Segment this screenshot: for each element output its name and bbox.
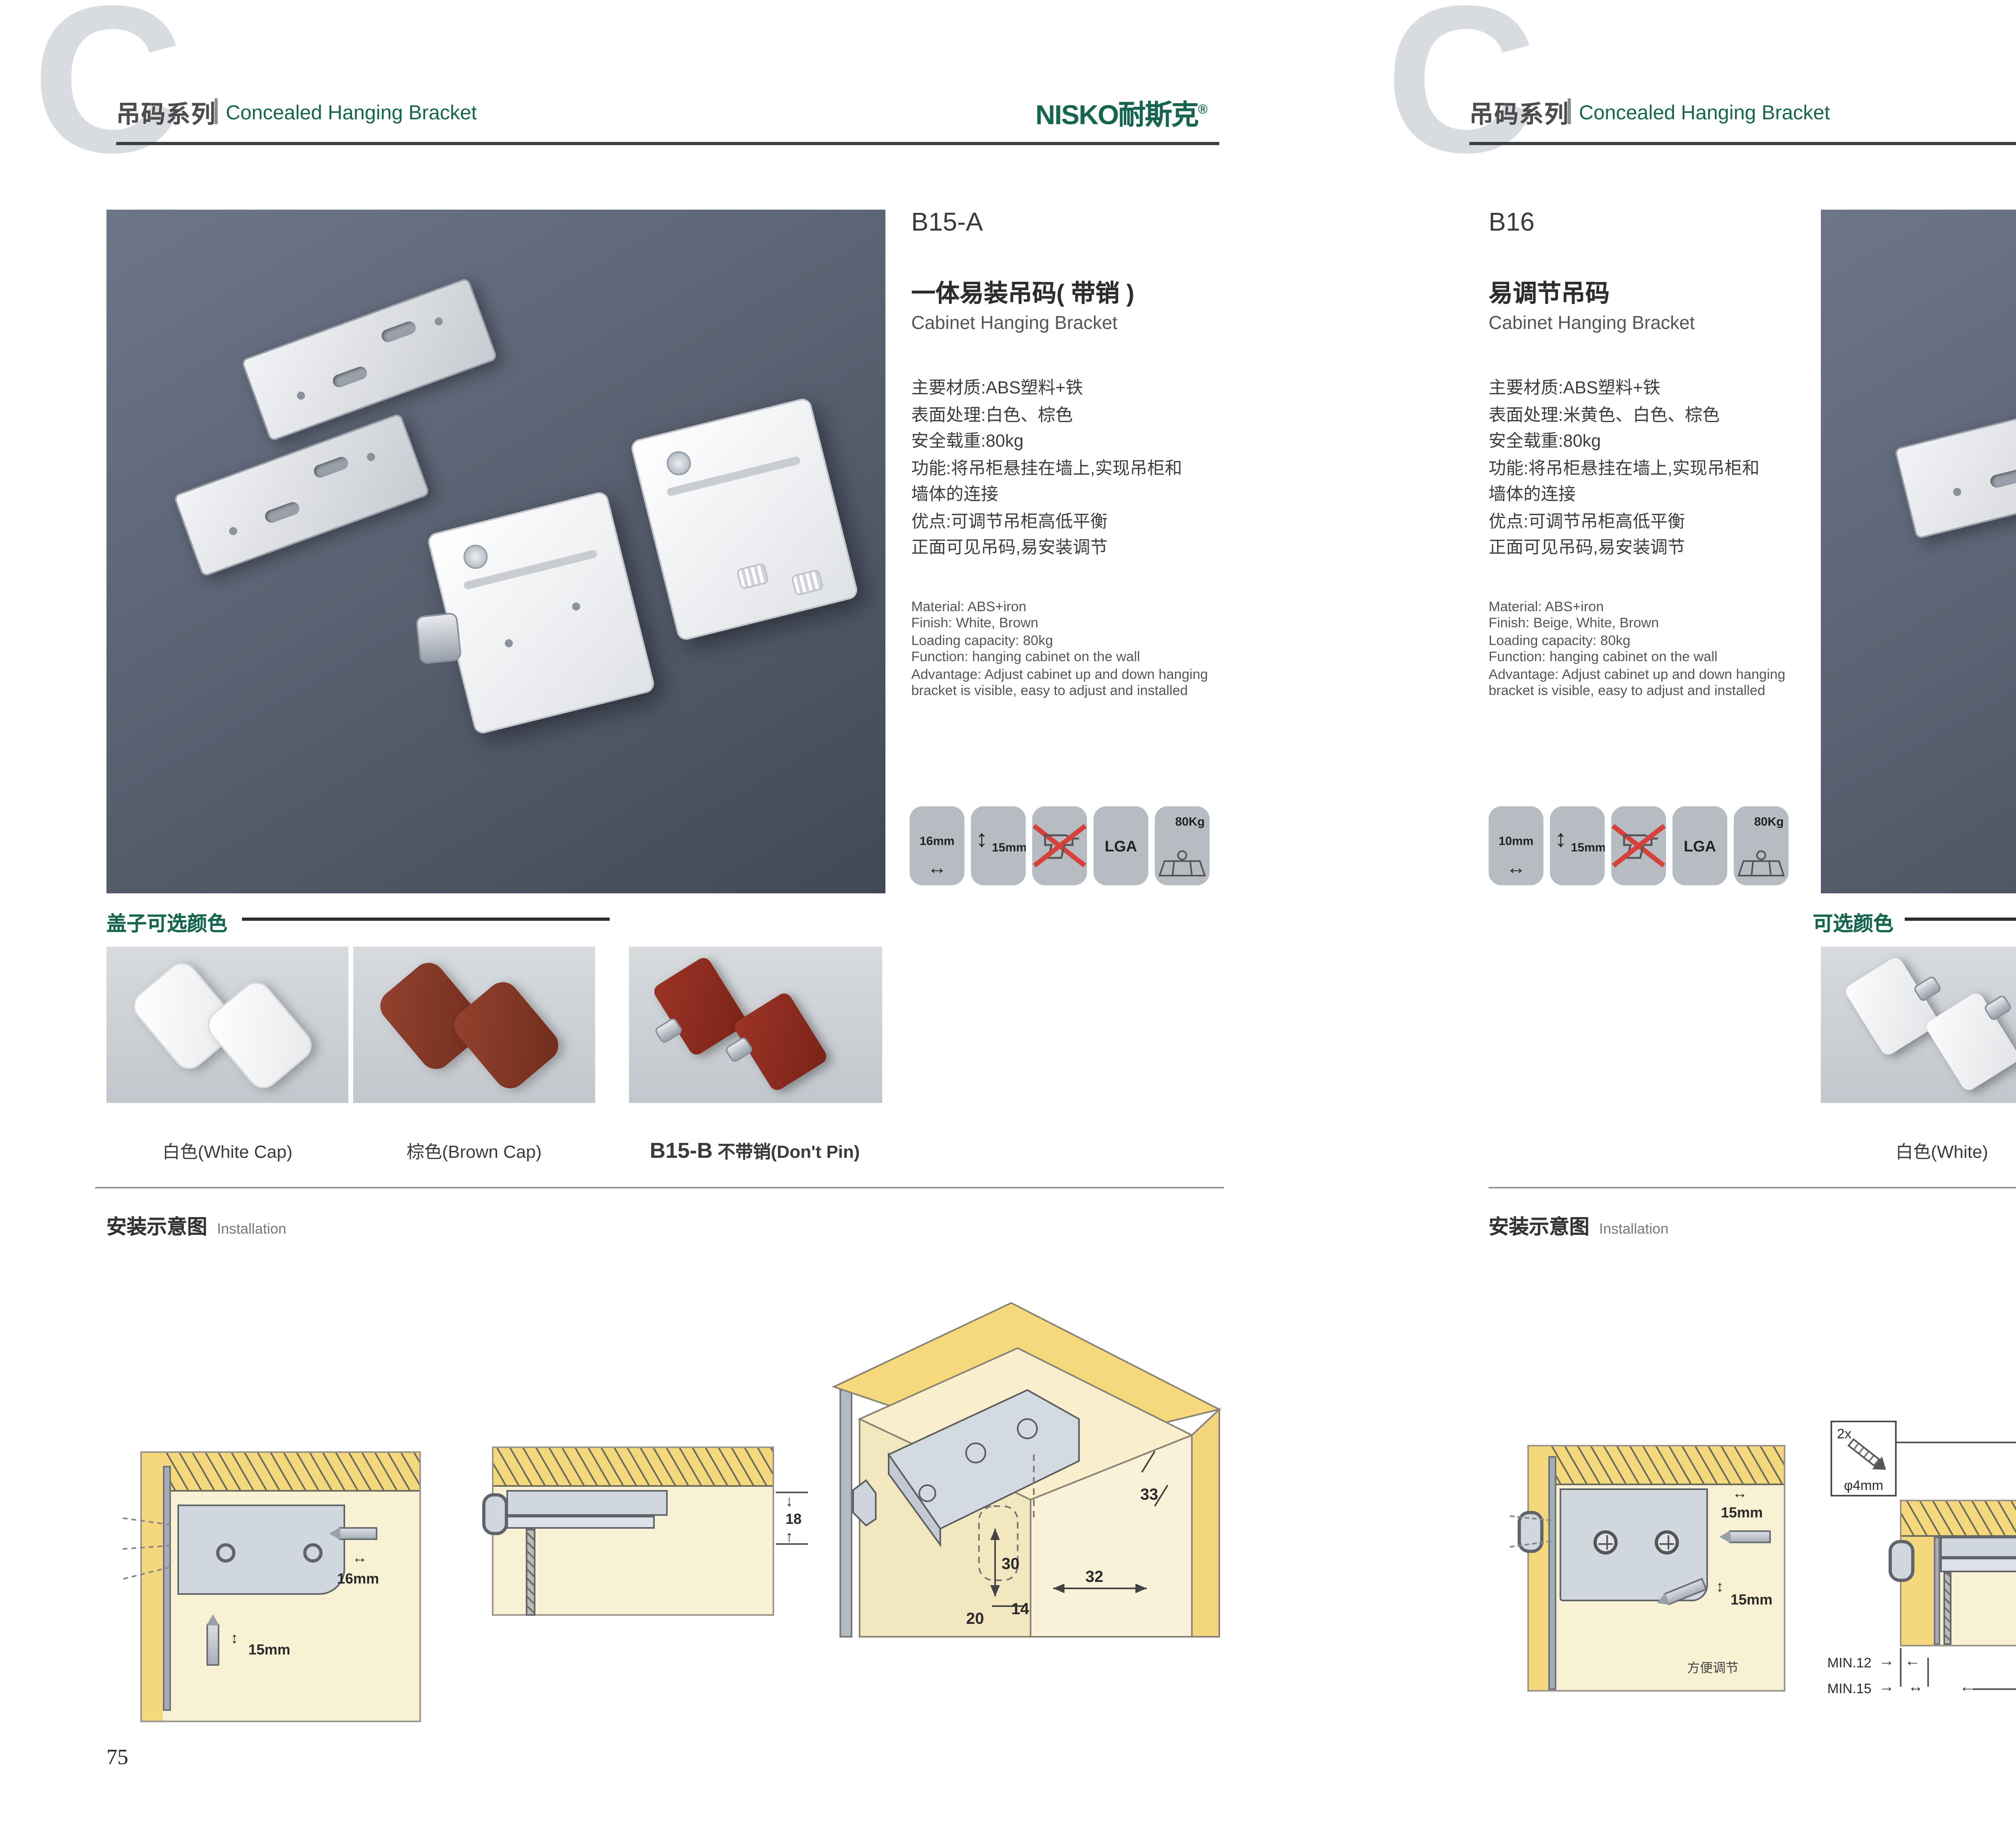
dimension-label: 18 [785,1511,802,1527]
product-name-en: Cabinet Hanging Bracket [911,314,1258,334]
color-swatch-brown [353,947,595,1103]
no-drill-icon [1032,806,1087,885]
product-code: B15-A [911,210,1258,239]
page-left: C 吊码系列 Concealed Hanging Bracket NISKO耐斯… [0,0,1352,1848]
dimension-tick [1927,1658,1929,1687]
feature-icon-strip: 16mm↔ ↕15mm LGA 80Kg [910,806,1210,885]
color-swatch-white [106,947,348,1103]
header-rule [116,142,1219,145]
right-arrow-icon: → [1879,1679,1894,1696]
lga-certification-icon: LGA [1093,806,1148,885]
page-right: C 吊码系列 Concealed Hanging Bracket NISKO耐斯… [1353,0,2016,1848]
svg-text:32: 32 [1085,1568,1104,1586]
product-name-en: Cabinet Hanging Bracket [1489,314,1835,334]
page-number: 75 [106,1745,128,1771]
wall-rail-image [1894,386,2016,539]
installation-title: 安装示意图Installation [1489,1209,1668,1240]
header-rule [1469,142,2016,145]
series-watermark: C [32,0,184,184]
no-drill-icon [1611,806,1666,885]
installation-diagram-perspective: 33 30 32 20 14 [831,1300,1223,1640]
vertical-arrow-icon: ↕ [1716,1579,1724,1596]
brand-latin: NISKO [1035,100,1118,131]
header-divider [215,98,218,124]
color-swatch-white [1821,947,2016,1103]
variant-label: B15-B 不带销(Don't Pin) [610,1138,900,1164]
header-divider [1568,98,1571,124]
down-arrow-icon: ↓ [785,1493,793,1511]
feature-icon-strip: 10mm↔ ↕15mm LGA 80Kg [1489,806,1789,885]
product-name-zh: 易调节吊码 [1489,276,1835,310]
swatch-label: 棕色(Brown Cap) [353,1138,595,1164]
brand-logo: NISKO耐斯克® [1035,92,1207,132]
horizontal-arrow-icon: ↔ [910,856,964,879]
callout-line [1897,1442,2016,1443]
installation-title: 安装示意图Installation [106,1209,286,1240]
width-dimension-icon: 16mm↔ [910,806,964,885]
vertical-arrow-icon: ↕ [976,826,988,853]
section-divider [1489,1187,2016,1188]
min-depth-label: MIN.12 [1827,1654,1872,1671]
series-title-en: Concealed Hanging Bracket [1579,102,1830,124]
min-depth-label: MIN.15 [1827,1680,1872,1696]
variant-photo [629,947,882,1103]
color-section-rule [242,918,610,921]
series-title-en: Concealed Hanging Bracket [226,102,477,124]
bracket-image [426,490,656,735]
load-capacity-icon: 80Kg [1734,806,1789,885]
height-dimension-icon: ↕15mm [1550,806,1605,885]
series-title-zh: 吊码系列 [116,97,216,131]
specs-en: Material: ABS+ironFinish: White, BrownLo… [911,597,1258,700]
up-arrow-icon: ↑ [785,1529,793,1546]
diagram-note: 方便调节 [1687,1659,1739,1677]
product-code: B16 [1489,210,1835,239]
product-photo [106,210,885,893]
bracket-image [629,397,859,642]
lga-certification-icon: LGA [1672,806,1727,885]
horizontal-arrow-icon: ↔ [1489,856,1543,879]
svg-text:20: 20 [966,1610,984,1627]
series-title-zh: 吊码系列 [1469,97,1569,131]
horizontal-arrow-icon: ↔ [335,1550,384,1567]
product-photo [1821,210,2016,893]
left-arrow-icon: ← [1960,1679,1975,1696]
vertical-arrow-icon: ↕ [1555,826,1567,853]
wall-rail-image [241,277,498,442]
screw-icon [1847,1438,1881,1467]
color-section-rule [1905,918,2016,921]
svg-text:33: 33 [1140,1486,1158,1503]
load-capacity-icon: 80Kg [1155,806,1210,885]
svg-text:14: 14 [1011,1600,1029,1618]
color-section-title: 可选颜色 [1813,906,1893,937]
brand-zh: 耐斯克 [1118,100,1198,131]
section-divider [95,1187,1224,1188]
h-arrow-icon: ↔ [1908,1679,1923,1696]
series-watermark: C [1385,0,1537,184]
height-dimension-icon: ↕15mm [971,806,1026,885]
width-dimension-icon: 10mm↔ [1489,806,1543,885]
swatch-label: 白色(White Cap) [106,1138,348,1164]
right-arrow-icon: → [1879,1653,1894,1671]
product-info: B15-A 一体易装吊码( 带销 ) Cabinet Hanging Brack… [911,210,1258,700]
installation-diagram-section [1900,1500,2016,1646]
vertical-arrow-icon: ↕ [231,1630,238,1648]
horizontal-arrow-icon: ↔ [1732,1485,1747,1503]
specs-en: Material: ABS+ironFinish: Beige, White, … [1489,597,1835,700]
dimension-tick [1900,1648,1901,1687]
installation-diagram-front: ↔ 16mm ↕ 15mm [140,1451,421,1722]
wall-rail-image [173,413,430,577]
installation-diagram-front: ↔ 15mm ↕ 15mm 方便调节 [1527,1445,1785,1692]
installation-diagram-section [492,1446,774,1616]
specs-zh: 主要材质:ABS塑料+铁表面处理:米黄色、白色、棕色安全载重:80kg功能:将吊… [1489,376,1835,562]
swatch-label: 白色(White) [1821,1138,2016,1164]
product-name-zh: 一体易装吊码( 带销 ) [911,276,1258,310]
product-info: B16 易调节吊码 Cabinet Hanging Bracket 主要材质:A… [1489,210,1835,700]
catalog-spread: C 吊码系列 Concealed Hanging Bracket NISKO耐斯… [0,0,2016,1848]
specs-zh: 主要材质:ABS塑料+铁表面处理:白色、棕色安全载重:80kg功能:将吊柜悬挂在… [911,376,1258,562]
left-arrow-icon: ← [1905,1653,1920,1671]
screw-spec-box: 2x φ4mm [1831,1421,1897,1496]
svg-text:30: 30 [1002,1555,1020,1573]
color-section-title: 盖子可选颜色 [106,906,227,937]
registered-mark: ® [1198,102,1207,117]
dimension-line [1972,1688,2016,1690]
